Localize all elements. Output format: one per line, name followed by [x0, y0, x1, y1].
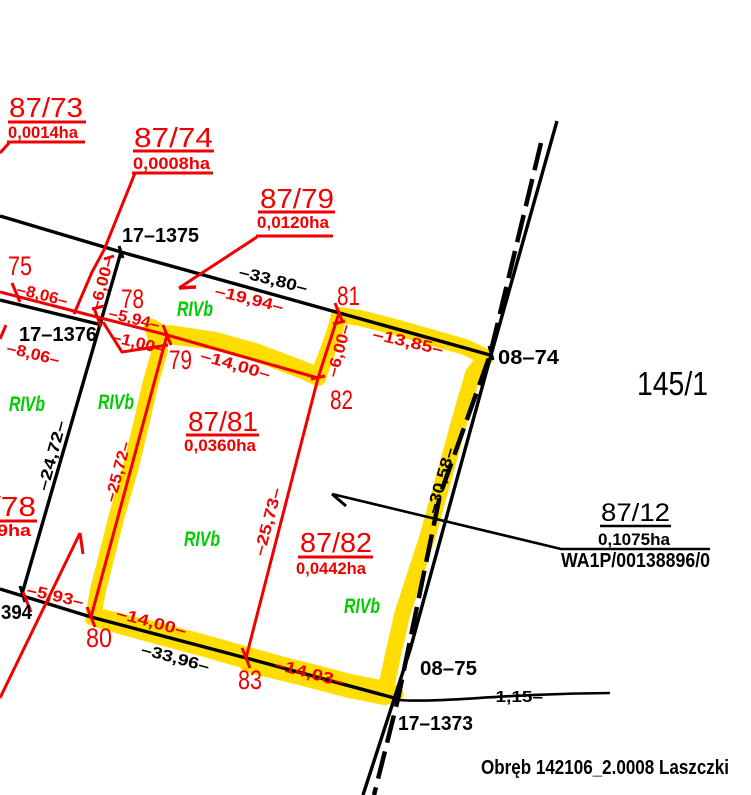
svg-text:87/82: 87/82	[300, 527, 372, 558]
svg-text:81: 81	[337, 281, 360, 311]
svg-text:Obręb 142106_2.0008 Laszczki: Obręb 142106_2.0008 Laszczki	[481, 757, 729, 779]
svg-text:87/73: 87/73	[9, 92, 83, 123]
svg-text:87/74: 87/74	[134, 122, 213, 153]
svg-text:17–1373: 17–1373	[398, 713, 473, 735]
svg-text:0,0014ha: 0,0014ha	[8, 123, 79, 142]
svg-text:87/79: 87/79	[260, 183, 334, 214]
svg-text:0,0120ha: 0,0120ha	[257, 213, 330, 232]
svg-text:RIVb: RIVb	[9, 393, 45, 416]
svg-text:0,0360ha: 0,0360ha	[184, 436, 257, 455]
svg-text:75: 75	[8, 251, 32, 281]
svg-text:80: 80	[86, 623, 112, 653]
svg-text:0,0442ha: 0,0442ha	[296, 559, 367, 578]
svg-text:87/12: 87/12	[601, 499, 670, 527]
svg-text:RIVb: RIVb	[184, 528, 220, 551]
svg-text:0,1075ha: 0,1075ha	[598, 530, 671, 549]
svg-text:RIVb: RIVb	[177, 298, 213, 321]
svg-text:0,0008ha: 0,0008ha	[133, 154, 211, 173]
svg-text:RIVb: RIVb	[344, 595, 380, 618]
svg-text:08–75: 08–75	[420, 658, 477, 680]
svg-text:08–74: 08–74	[498, 347, 560, 369]
svg-text:RIVb: RIVb	[98, 391, 134, 414]
svg-text:/78: /78	[0, 491, 36, 522]
svg-text:17–1375: 17–1375	[122, 225, 199, 247]
svg-text:9ha: 9ha	[0, 521, 32, 540]
svg-text:17–1376: 17–1376	[19, 324, 97, 346]
svg-text:WA1P/00138896/0: WA1P/00138896/0	[561, 550, 710, 572]
svg-text:83: 83	[238, 665, 262, 695]
svg-text:394: 394	[1, 602, 33, 624]
svg-text:79: 79	[169, 345, 192, 375]
svg-text:87/81: 87/81	[188, 406, 258, 437]
svg-text:145/1: 145/1	[637, 365, 708, 402]
svg-text:82: 82	[330, 385, 353, 415]
svg-text:–1,15–: –1,15–	[485, 689, 543, 706]
